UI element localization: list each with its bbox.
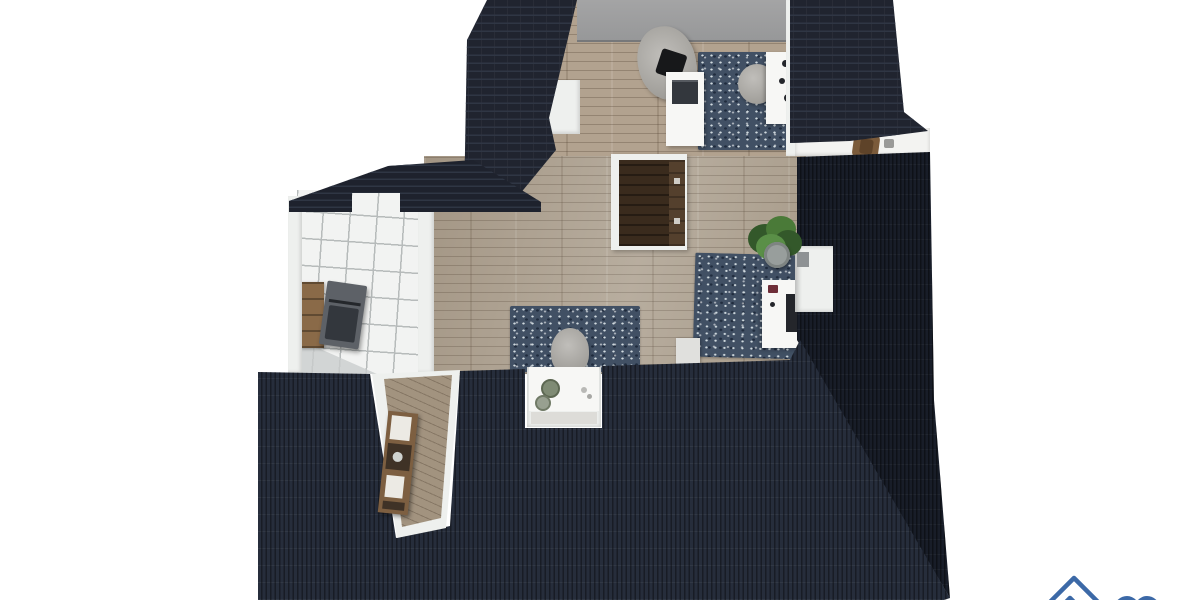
shelf-paper xyxy=(384,475,404,499)
potted-plant xyxy=(748,216,806,272)
counter-item xyxy=(587,394,592,399)
shelf-paper xyxy=(389,415,411,441)
balcony-item xyxy=(884,139,894,148)
shelf-item xyxy=(392,451,403,462)
counter-item xyxy=(581,387,587,393)
house-icon xyxy=(1048,578,1100,600)
rail-post xyxy=(674,178,680,184)
appliance-door xyxy=(325,305,359,343)
rail-post xyxy=(674,218,680,224)
watermark-logo xyxy=(1040,570,1160,600)
tv xyxy=(672,80,698,104)
tv-cabinet xyxy=(666,72,704,146)
wall-kitchenette-right xyxy=(418,196,434,374)
shelf-dark-row xyxy=(382,501,405,511)
washbasin-cabinet xyxy=(529,367,599,411)
plant-pot xyxy=(764,242,790,268)
side-table xyxy=(676,338,700,366)
staircase-rail xyxy=(669,160,685,246)
basin xyxy=(535,395,551,411)
washbasin-shelf xyxy=(531,412,597,424)
balcony-chair-seat xyxy=(859,138,874,155)
floor-plan-render xyxy=(0,0,1200,600)
staircase xyxy=(619,160,669,246)
shelf-dark-row xyxy=(385,443,412,471)
desk-item xyxy=(779,78,785,84)
red-desk-item xyxy=(768,285,778,293)
desk-item xyxy=(770,302,775,307)
wall-kitchenette-left xyxy=(288,196,302,374)
